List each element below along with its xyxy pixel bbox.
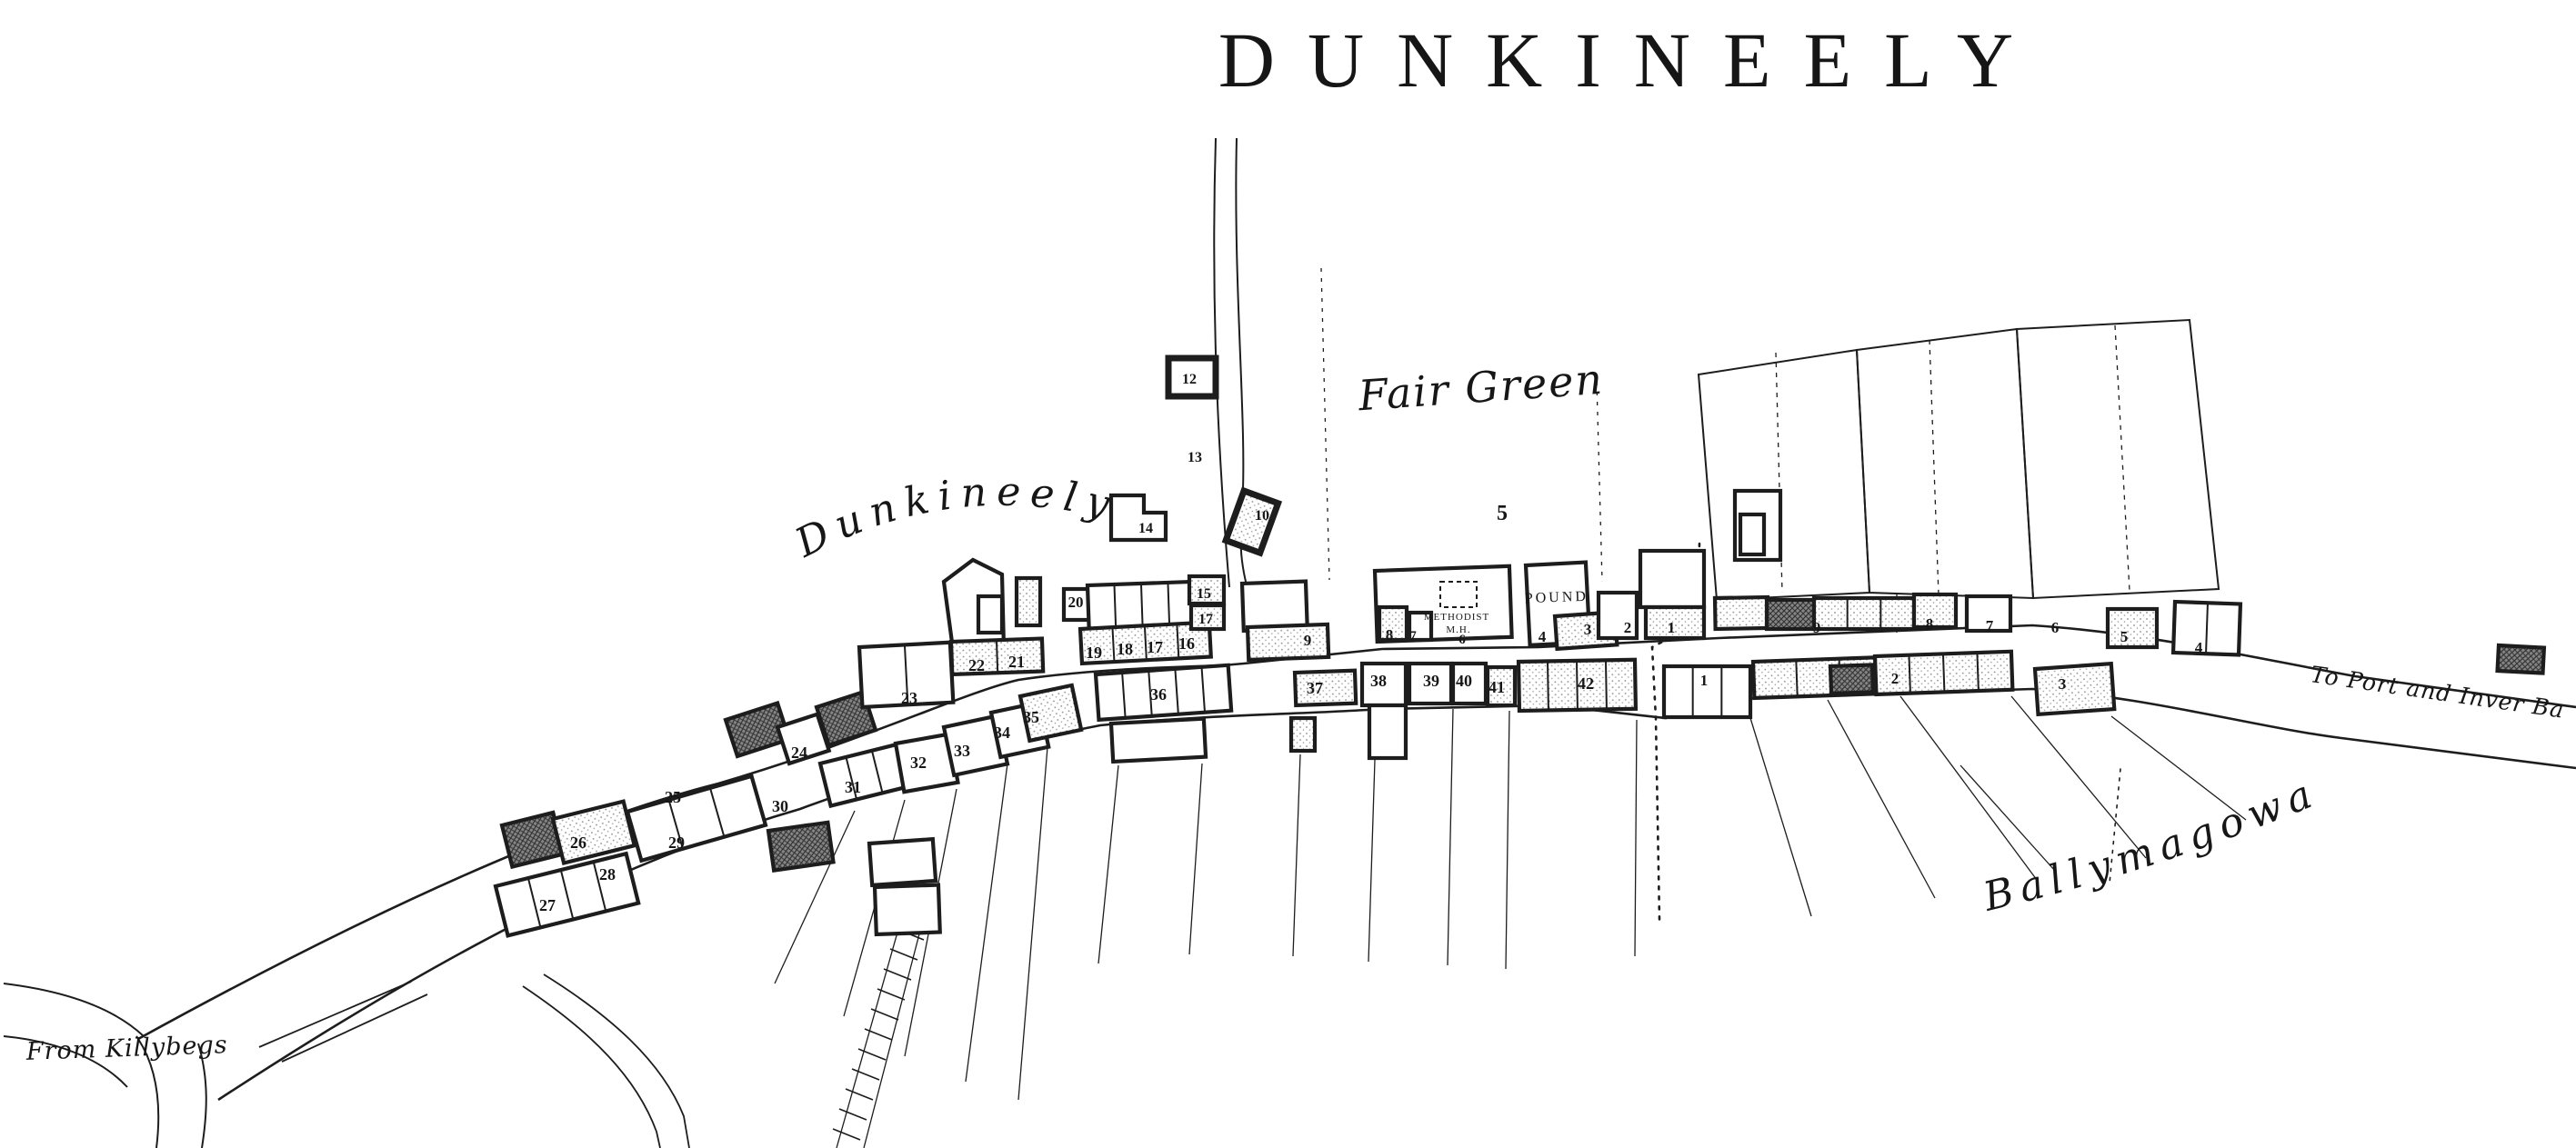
building — [1440, 582, 1477, 607]
building — [978, 596, 1002, 633]
plot-boundary-line — [837, 916, 902, 1148]
field-enclosure — [2017, 320, 2219, 598]
building-party-wall — [1943, 655, 1944, 691]
plot-boundary-line — [1635, 720, 1637, 956]
plot-number-19: 19 — [1086, 644, 1102, 662]
building — [1715, 597, 1769, 629]
plot-number-17: 17 — [1198, 612, 1213, 627]
building — [1640, 551, 1704, 607]
plot-boundary-line — [1828, 700, 1935, 898]
plot-number-41: 41 — [1488, 678, 1505, 696]
hachure-stroke — [877, 989, 905, 1000]
plot-number-26: 26 — [570, 834, 586, 852]
building — [1295, 671, 1356, 705]
field-enclosure — [1857, 329, 2033, 598]
road — [544, 974, 689, 1148]
plot-boundary-line — [1960, 765, 2055, 871]
plot-boundary-line — [1929, 340, 1939, 595]
place-label-dunkineely-script: Dunkineely — [787, 469, 1122, 567]
building — [1226, 491, 1278, 553]
plot-number-3: 3 — [1584, 621, 1592, 638]
plot-boundary-line — [1098, 765, 1118, 963]
plot-number-5: 5 — [1497, 502, 1508, 525]
place-label-fair-green: Fair Green — [1356, 354, 1605, 421]
plot-number-8: 8 — [1386, 626, 1394, 644]
plot-number-9: 9 — [1304, 632, 1312, 649]
plot-number-1: 1 — [1700, 672, 1709, 689]
plot-number-8: 8 — [1926, 615, 1934, 633]
building — [768, 823, 833, 871]
labels-layer: Fair GreenFrom KillybegsPOUNDMETHODISTM.… — [0, 0, 2566, 1066]
place-label-text-dunkineely-script: Dunkineely — [787, 469, 1122, 567]
building — [2108, 609, 2157, 647]
plot-number-2: 2 — [1624, 619, 1632, 636]
plot-number-6: 6 — [1458, 633, 1466, 647]
plot-boundary-line — [1900, 696, 2037, 880]
map-title: DUNKINEELY — [1218, 16, 2046, 104]
building — [820, 744, 908, 806]
plot-number-29: 29 — [668, 834, 685, 852]
building — [875, 885, 940, 934]
hachure-stroke — [890, 949, 917, 960]
plot-number-7: 7 — [1409, 629, 1417, 644]
plot-number-2: 2 — [1891, 670, 1899, 687]
plot-boundary-line — [966, 764, 1007, 1082]
building — [1369, 705, 1406, 758]
plot-number-39: 39 — [1423, 672, 1439, 690]
plot-boundary-line — [1506, 711, 1509, 969]
building — [1814, 598, 1914, 629]
plot-number-7: 7 — [1986, 617, 1994, 634]
plot-boundary-line — [1448, 709, 1453, 965]
plot-number-33: 33 — [954, 742, 970, 760]
plot-number-23: 23 — [901, 689, 917, 707]
hachure-stroke — [871, 1009, 898, 1020]
plot-number-42: 42 — [1578, 674, 1594, 693]
plot-number-30: 30 — [772, 797, 788, 815]
plot-number-36: 36 — [1150, 685, 1167, 704]
place-label-pound: POUND — [1525, 589, 1589, 606]
building — [1830, 664, 1873, 694]
plot-number-25: 25 — [665, 788, 681, 806]
road — [4, 983, 144, 1036]
plot-number-4: 4 — [2195, 639, 2203, 656]
building-party-wall — [1548, 663, 1549, 709]
place-label-methodist-1: METHODIST — [1424, 612, 1490, 623]
plot-number-16: 16 — [1178, 634, 1195, 653]
plot-number-18: 18 — [1117, 640, 1133, 658]
plot-number-35: 35 — [1023, 708, 1039, 726]
building — [1111, 719, 1206, 762]
road — [523, 986, 660, 1148]
place-label-from-killybegs: From Killybegs — [25, 1031, 228, 1066]
plot-number-1: 1 — [1668, 619, 1676, 636]
plot-number-22: 22 — [968, 656, 985, 674]
hachure-stroke — [833, 1129, 860, 1140]
plot-number-9: 9 — [1813, 619, 1821, 636]
plot-boundary-line — [1368, 760, 1375, 962]
plot-boundary-line — [2011, 696, 2146, 858]
building — [1248, 624, 1328, 660]
plot-boundary-line — [1597, 382, 1602, 582]
plot-number-31: 31 — [845, 778, 861, 796]
plot-number-37: 37 — [1307, 679, 1323, 697]
plot-number-40: 40 — [1456, 672, 1472, 690]
plot-boundary-line — [1018, 747, 1047, 1100]
plot-number-12: 12 — [1182, 372, 1197, 387]
plot-number-5: 5 — [2120, 628, 2129, 645]
plot-boundary-line — [1293, 754, 1300, 956]
plot-number-27: 27 — [539, 896, 556, 914]
building — [1242, 582, 1308, 631]
building-party-wall — [997, 642, 997, 672]
building — [869, 839, 936, 885]
plot-number-38: 38 — [1370, 672, 1387, 690]
plot-number-4: 4 — [1539, 628, 1547, 645]
plot-number-34: 34 — [994, 724, 1010, 742]
plot-number-6: 6 — [2051, 619, 2060, 636]
plot-number-28: 28 — [599, 865, 616, 883]
building — [1017, 578, 1040, 625]
building — [1291, 718, 1315, 751]
plot-number-21: 21 — [1008, 653, 1025, 671]
building — [2498, 645, 2544, 674]
hachure-stroke — [846, 1089, 873, 1100]
building — [1914, 594, 1956, 627]
building-party-wall — [1606, 662, 1607, 708]
plot-number-13: 13 — [1188, 450, 1202, 465]
plot-number-20: 20 — [1068, 594, 1084, 611]
hachure-stroke — [884, 969, 911, 980]
building-party-wall — [1796, 662, 1797, 695]
plot-boundary-line — [2115, 325, 2130, 591]
hachure-stroke — [839, 1109, 867, 1120]
plot-boundary-line — [864, 923, 922, 1148]
plot-number-10: 10 — [1255, 508, 1269, 524]
building-party-wall — [1909, 656, 1910, 692]
map-page: Fair GreenFrom KillybegsPOUNDMETHODISTM.… — [0, 0, 2576, 1148]
field-enclosure — [1699, 350, 1869, 600]
building — [1767, 600, 1814, 629]
building — [2035, 664, 2114, 714]
plot-boundary-line — [1189, 764, 1202, 954]
plot-number-3: 3 — [2059, 675, 2067, 693]
building — [1740, 514, 1764, 554]
map-svg: Fair GreenFrom KillybegsPOUNDMETHODISTM.… — [0, 0, 2576, 1148]
plot-number-17: 17 — [1147, 638, 1163, 656]
plot-number-24: 24 — [791, 744, 807, 762]
plot-number-32: 32 — [910, 754, 927, 772]
building-party-wall — [1977, 654, 1978, 690]
plot-number-14: 14 — [1138, 521, 1153, 536]
plot-boundary-line — [1321, 268, 1329, 580]
plot-boundary-line — [1750, 718, 1811, 916]
plot-number-15: 15 — [1197, 586, 1211, 602]
